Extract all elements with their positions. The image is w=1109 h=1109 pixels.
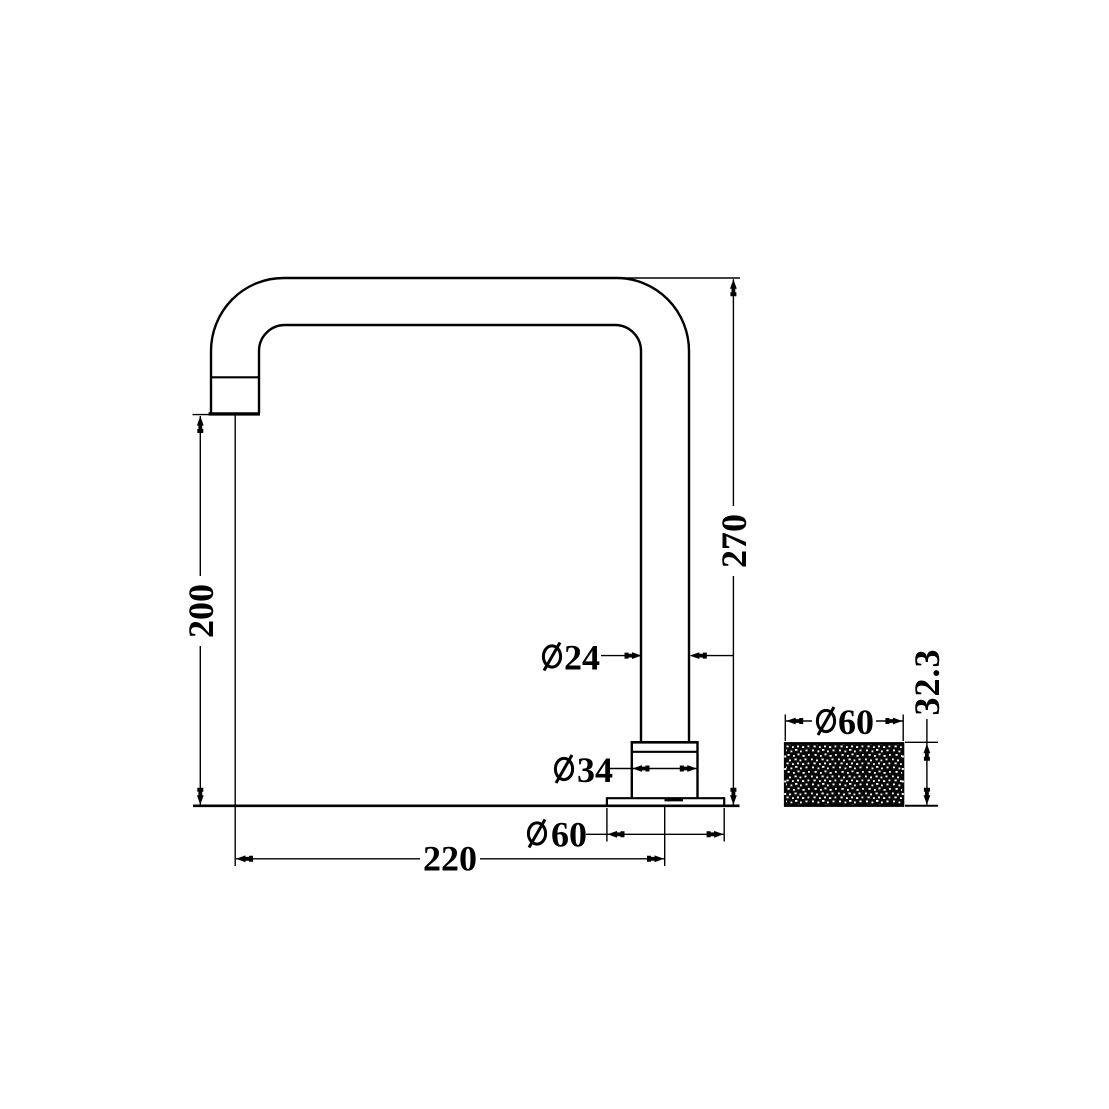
svg-text:34: 34 [577, 750, 613, 790]
svg-text:200: 200 [181, 584, 221, 638]
svg-text:60: 60 [551, 815, 587, 855]
svg-text:24: 24 [564, 638, 600, 678]
svg-text:60: 60 [838, 702, 874, 742]
svg-text:270: 270 [714, 514, 754, 568]
svg-text:220: 220 [423, 839, 477, 879]
svg-text:32.3: 32.3 [907, 649, 947, 716]
